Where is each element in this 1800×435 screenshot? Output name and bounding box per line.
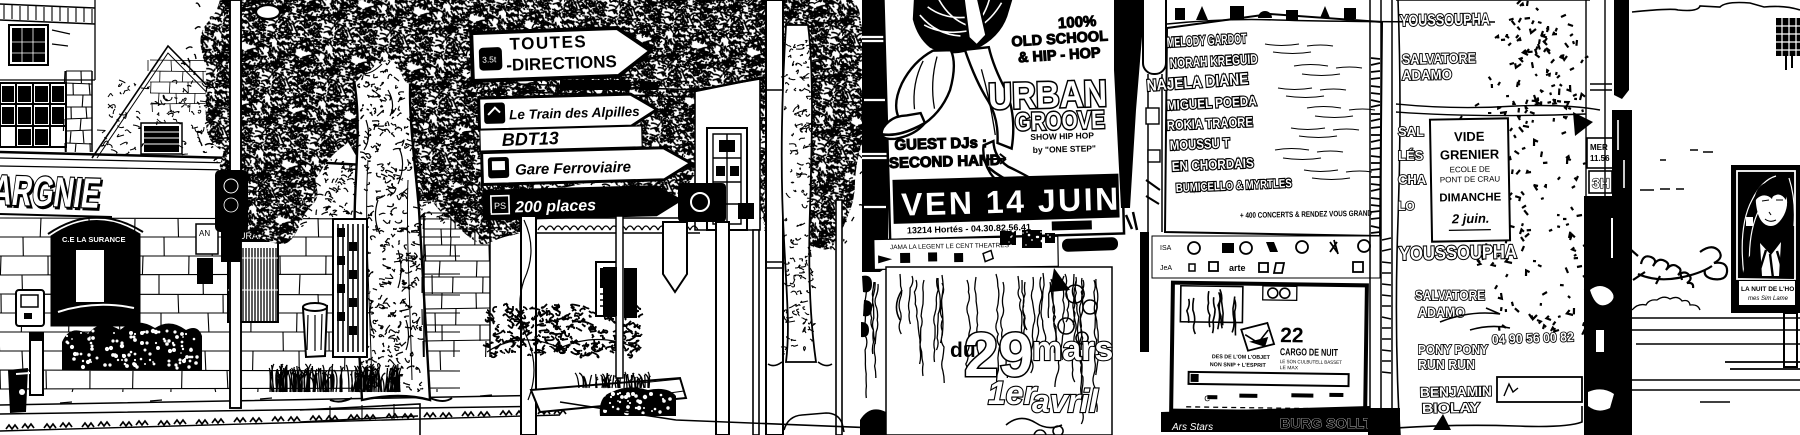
svg-text:SECOND HAND: SECOND HAND (889, 152, 1001, 172)
svg-text:Gare Ferroviaire: Gare Ferroviaire (515, 159, 631, 179)
svg-text:mes Sim Lame: mes Sim Lame (1748, 296, 1789, 302)
svg-text:200 places: 200 places (514, 197, 596, 216)
svg-text:YOUSSOUPHA: YOUSSOUPHA (1400, 11, 1491, 30)
svg-text:ARGNIE: ARGNIE (0, 166, 103, 217)
svg-text:YOUSSOUPHA: YOUSSOUPHA (1399, 242, 1518, 265)
svg-text:PONY PONY: PONY PONY (1418, 343, 1489, 357)
svg-text:SALVATORE: SALVATORE (1415, 288, 1485, 303)
svg-text:RUN RUN: RUN RUN (1418, 358, 1475, 372)
svg-text:11.56: 11.56 (1590, 154, 1610, 163)
svg-text:22: 22 (1280, 324, 1304, 347)
svg-text:SALVATORE: SALVATORE (1402, 50, 1476, 67)
svg-text:SHOW HIP HOP: SHOW HIP HOP (1030, 130, 1094, 142)
svg-text:C: C (1204, 394, 1210, 403)
svg-text:DES DE L'OM L'OBJET: DES DE L'OM L'OBJET (1212, 354, 1271, 361)
svg-text:ISA: ISA (1160, 245, 1172, 252)
svg-text:-DIRECTIONS: -DIRECTIONS (506, 52, 617, 75)
svg-text:Ars Stars: Ars Stars (1171, 422, 1213, 433)
svg-text:GRENIER: GRENIER (1440, 146, 1500, 162)
svg-text:PS: PS (494, 201, 506, 211)
svg-text:avril: avril (1032, 383, 1099, 419)
svg-text:NON SNIP + L'ESPRIT: NON SNIP + L'ESPRIT (1210, 362, 1267, 369)
svg-text:ADAMO: ADAMO (1418, 305, 1465, 320)
svg-text:CARGO DE NUIT: CARGO DE NUIT (1280, 347, 1338, 359)
svg-text:DIMANCHE: DIMANCHE (1439, 191, 1501, 204)
svg-text:LÉS: LÉS (1398, 148, 1424, 163)
svg-text:2 juin.: 2 juin. (1451, 211, 1490, 227)
svg-text:AN: AN (199, 229, 210, 238)
svg-text:04 90 56 00 82: 04 90 56 00 82 (1492, 329, 1574, 347)
svg-text:VIDE: VIDE (1454, 129, 1485, 145)
svg-text:ADAMO: ADAMO (1402, 66, 1452, 83)
svg-text:MOUSSU T: MOUSSU T (1169, 135, 1230, 153)
svg-text:C.E LA SURANCE: C.E LA SURANCE (62, 235, 125, 244)
svg-text:CHA: CHA (1398, 172, 1427, 187)
svg-text:mars: mars (1032, 330, 1113, 368)
svg-text:TOUTES: TOUTES (509, 32, 587, 54)
svg-text:BDT13: BDT13 (501, 128, 559, 150)
svg-text:arte: arte (1229, 263, 1246, 273)
svg-text:BIOLAY: BIOLAY (1422, 400, 1480, 416)
svg-text:VEN 14 JUIN: VEN 14 JUIN (901, 181, 1121, 223)
svg-text:SAL: SAL (1398, 124, 1424, 139)
svg-text:LA NUIT DE L'HO: LA NUIT DE L'HO (1741, 286, 1794, 293)
svg-text:3H: 3H (1592, 175, 1610, 191)
svg-text:LO: LO (1398, 199, 1415, 213)
svg-text:BENJAMIN: BENJAMIN (1420, 384, 1492, 400)
svg-text:3.5t: 3.5t (482, 54, 497, 65)
svg-text:LE MAX: LE MAX (1280, 365, 1299, 371)
svg-text:JeA: JeA (1160, 265, 1172, 272)
svg-text:BURG SOLLT: BURG SOLLT (1280, 415, 1372, 431)
svg-text:ECOLE DE: ECOLE DE (1450, 165, 1491, 175)
svg-text:1er: 1er (988, 375, 1038, 411)
svg-text:PONT DE CRAU: PONT DE CRAU (1440, 174, 1501, 184)
svg-text:GUEST DJs :: GUEST DJs : (894, 134, 987, 154)
svg-text:by "ONE STEP": by "ONE STEP" (1033, 143, 1097, 155)
